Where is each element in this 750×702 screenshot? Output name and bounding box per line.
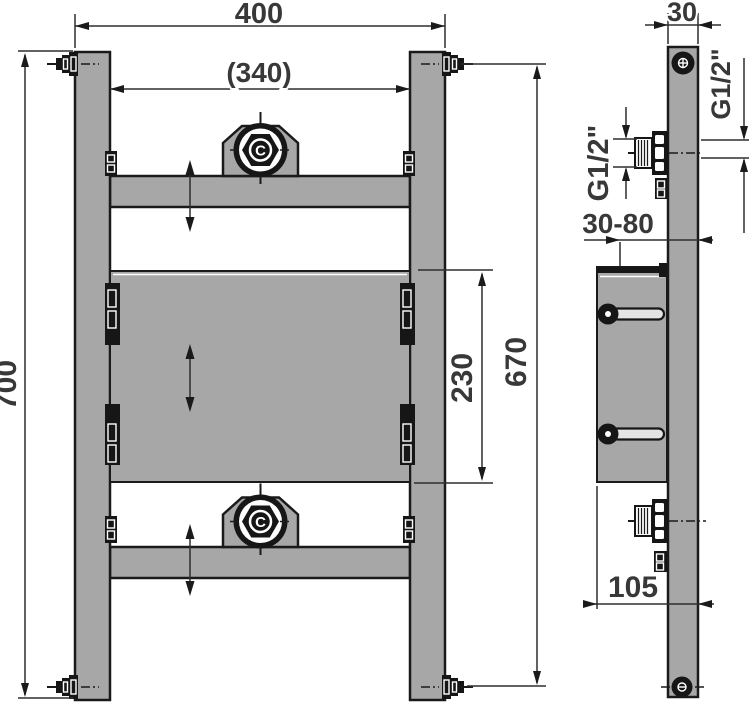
dim-overall-width-label: 400 xyxy=(235,0,283,30)
technical-drawing-page: C C xyxy=(0,0,750,702)
dim-inner-width: (340) xyxy=(110,57,410,93)
dim-thread-rear-label: G1/2" xyxy=(706,48,736,119)
plate-body xyxy=(597,267,667,482)
arrowhead xyxy=(740,158,748,172)
thread-body xyxy=(635,506,652,536)
thread-body xyxy=(635,138,652,168)
installation-frame-drawing: C C xyxy=(0,0,750,702)
arrowhead xyxy=(622,167,630,181)
arrowhead xyxy=(478,467,486,481)
dim-overall-height-label: 700 xyxy=(0,360,23,410)
front-view: C C xyxy=(0,0,546,700)
dim-panel-height-label: 230 xyxy=(446,353,479,403)
dim-overall-height: 700 xyxy=(0,51,73,698)
dim-inner-width-label: (340) xyxy=(226,57,291,88)
side-view: 30 G1/2" G1/2" 30-80 xyxy=(582,0,749,698)
arrowhead xyxy=(654,21,668,29)
clip-body xyxy=(400,283,415,345)
clip-left-panel-bottom xyxy=(105,404,120,465)
arrowhead xyxy=(698,236,712,244)
slot xyxy=(612,309,664,320)
bolt-washer xyxy=(56,58,62,70)
plate-top-edge xyxy=(597,267,667,273)
clip-right-panel-top xyxy=(400,283,415,345)
clip-right-crossbar-top xyxy=(403,151,415,176)
slot-hole-center xyxy=(605,311,611,317)
dim-thread-rear: G1/2" xyxy=(701,48,749,233)
dim-profile-depth-label: 30 xyxy=(667,0,697,27)
left-post xyxy=(75,52,110,700)
arrowhead xyxy=(583,600,597,608)
arrowhead xyxy=(533,65,541,79)
bolt-washer xyxy=(56,681,62,693)
slot xyxy=(612,429,664,440)
arrowhead xyxy=(740,126,748,140)
arrowhead xyxy=(698,21,712,29)
nut-logo-top: C xyxy=(255,143,266,160)
arrowhead xyxy=(21,53,29,67)
arrowhead xyxy=(533,671,541,685)
dim-thread-front-label: G1/2" xyxy=(583,125,615,202)
flange-detail xyxy=(655,515,664,527)
arrowhead xyxy=(186,217,195,232)
nut-logo-bottom: C xyxy=(255,514,266,531)
clip-right-crossbar-bottom xyxy=(403,516,415,543)
clip-right-panel-bottom xyxy=(400,404,415,465)
dim-anchor-spacing-label: 670 xyxy=(500,337,533,387)
dim-wall-offset-label: 30-80 xyxy=(582,208,654,239)
clip-left-crossbar-top xyxy=(105,151,117,176)
arrowhead xyxy=(622,125,630,139)
panel-body xyxy=(110,271,410,482)
mounting-panel xyxy=(110,271,410,482)
clip-left-panel-top xyxy=(105,283,120,345)
arrowhead xyxy=(186,581,195,596)
flange-detail xyxy=(655,503,664,512)
flange-detail xyxy=(655,530,664,539)
flange-detail xyxy=(655,147,664,159)
arrowhead xyxy=(431,22,445,30)
clip-body xyxy=(400,404,415,465)
dim-thread-front: G1/2" xyxy=(583,107,637,201)
dim-overall-width: 400 xyxy=(75,0,445,48)
dim-mount-depth-label: 105 xyxy=(608,571,658,604)
wall-plate xyxy=(597,263,668,482)
bolt-washer xyxy=(458,681,464,693)
pipe-clip-upper xyxy=(655,178,667,199)
clip-body xyxy=(105,404,120,465)
top-faucet-mount: C xyxy=(223,112,298,184)
arrowhead xyxy=(21,683,29,697)
flange-detail xyxy=(655,162,664,171)
flange-detail xyxy=(655,135,664,144)
clip-left-crossbar-bottom xyxy=(105,516,117,543)
arrowhead xyxy=(478,272,486,286)
clip-body xyxy=(105,283,120,345)
arrowhead xyxy=(396,85,410,93)
side-post xyxy=(668,47,698,697)
pipe-clip-lower xyxy=(654,551,667,572)
arrowhead xyxy=(186,160,195,175)
plate-bracket xyxy=(659,263,668,277)
arrowhead xyxy=(698,600,712,608)
arrowhead xyxy=(110,85,124,93)
arrowhead xyxy=(75,22,89,30)
post-hole-top xyxy=(672,52,695,75)
dim-profile-depth: 30 xyxy=(645,0,721,44)
bottom-faucet-mount: C xyxy=(223,484,298,556)
slot-hole-center xyxy=(605,431,611,437)
arrowhead xyxy=(186,524,195,539)
right-post xyxy=(410,52,445,700)
